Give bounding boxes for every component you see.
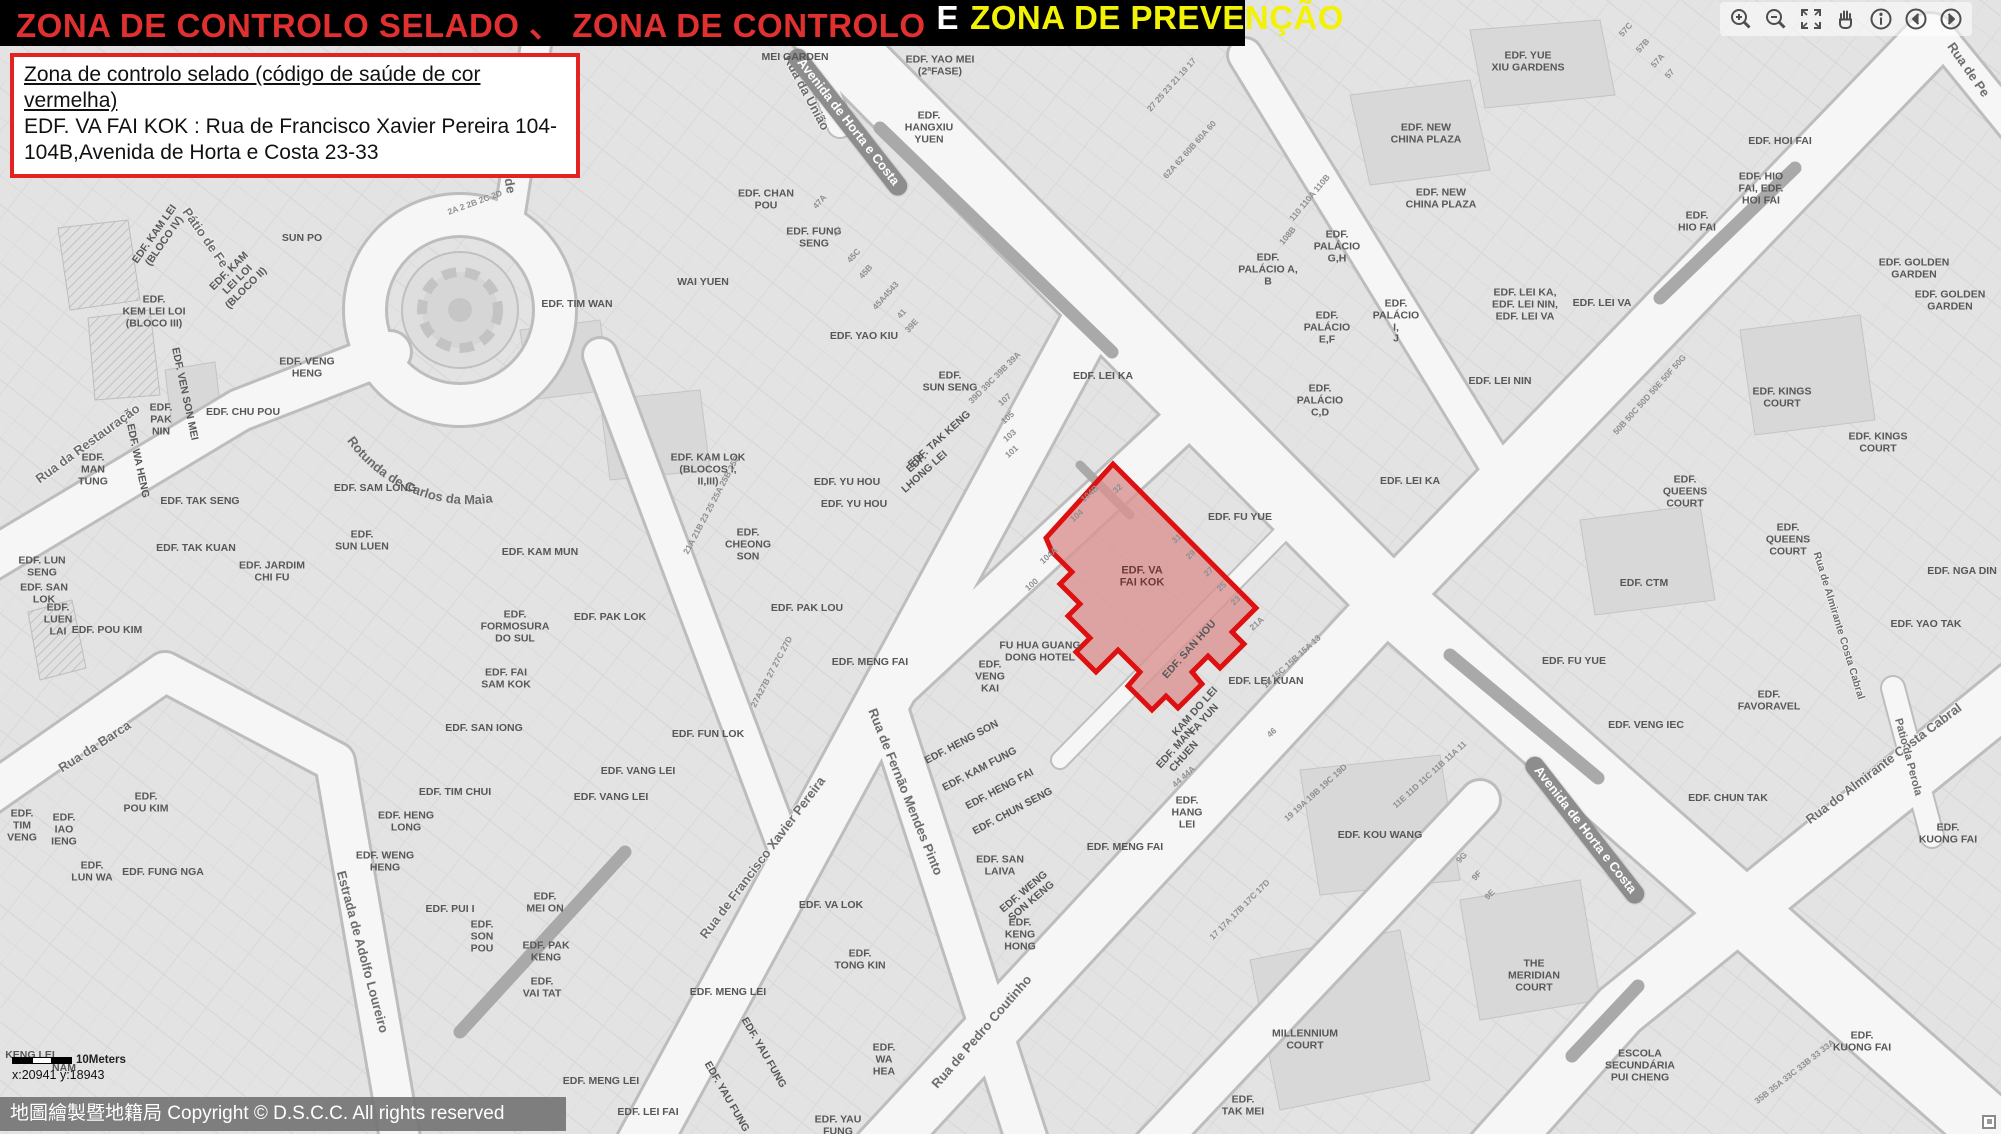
roundabout	[402, 252, 518, 368]
scale-bar: 10Meters	[12, 1056, 126, 1064]
next-extent-button[interactable]	[1937, 5, 1965, 33]
zoom-out-button[interactable]	[1762, 5, 1790, 33]
scale-segment	[12, 1057, 32, 1064]
copyright-bar: 地圖繪製暨地籍局 Copyright © D.S.C.C. All rights…	[0, 1097, 566, 1131]
previous-arrow-icon	[1903, 6, 1929, 32]
next-arrow-icon	[1938, 6, 1964, 32]
identify-info-icon	[1868, 6, 1894, 32]
map-corner-icon[interactable]	[1982, 1115, 1996, 1129]
title-banner: ZONA DE CONTROLO SELADO 、 ZONA DE CONTRO…	[0, 0, 1245, 46]
identify-button[interactable]	[1867, 5, 1895, 33]
scale-label: 10Meters	[76, 1054, 126, 1066]
full-extent-button[interactable]	[1797, 5, 1825, 33]
zoom-out-icon	[1763, 6, 1789, 32]
zoom-in-icon	[1728, 6, 1754, 32]
cursor-coordinates: x:20941 y:18943	[12, 1068, 126, 1082]
zone-title: Zona de controlo selado (código de saúde…	[24, 63, 480, 112]
pan-hand-icon	[1833, 6, 1859, 32]
scale-segment	[32, 1057, 52, 1064]
zoom-in-button[interactable]	[1727, 5, 1755, 33]
zone-info-box: Zona de controlo selado (código de saúde…	[10, 53, 580, 178]
map-toolbar	[1720, 2, 1972, 36]
pan-button[interactable]	[1832, 5, 1860, 33]
scale-widget: 10Meters x:20941 y:18943	[12, 1056, 126, 1082]
zone-address: EDF. VA FAI KOK : Rua de Francisco Xavie…	[24, 115, 557, 164]
map-viewer: Rotunda de Carlos da Maia Rua da Restaur…	[0, 0, 2001, 1134]
title-segment: E	[937, 0, 960, 47]
previous-extent-button[interactable]	[1902, 5, 1930, 33]
full-extent-icon	[1798, 6, 1824, 32]
title-segment: ZONA DE PREVENÇÃO	[970, 0, 1344, 47]
title-segment: ZONA DE CONTROLO SELADO 、 ZONA DE CONTRO…	[16, 0, 926, 47]
scale-segment	[52, 1057, 72, 1064]
title-banner-text: ZONA DE CONTROLO SELADO 、 ZONA DE CONTRO…	[16, 0, 1355, 47]
